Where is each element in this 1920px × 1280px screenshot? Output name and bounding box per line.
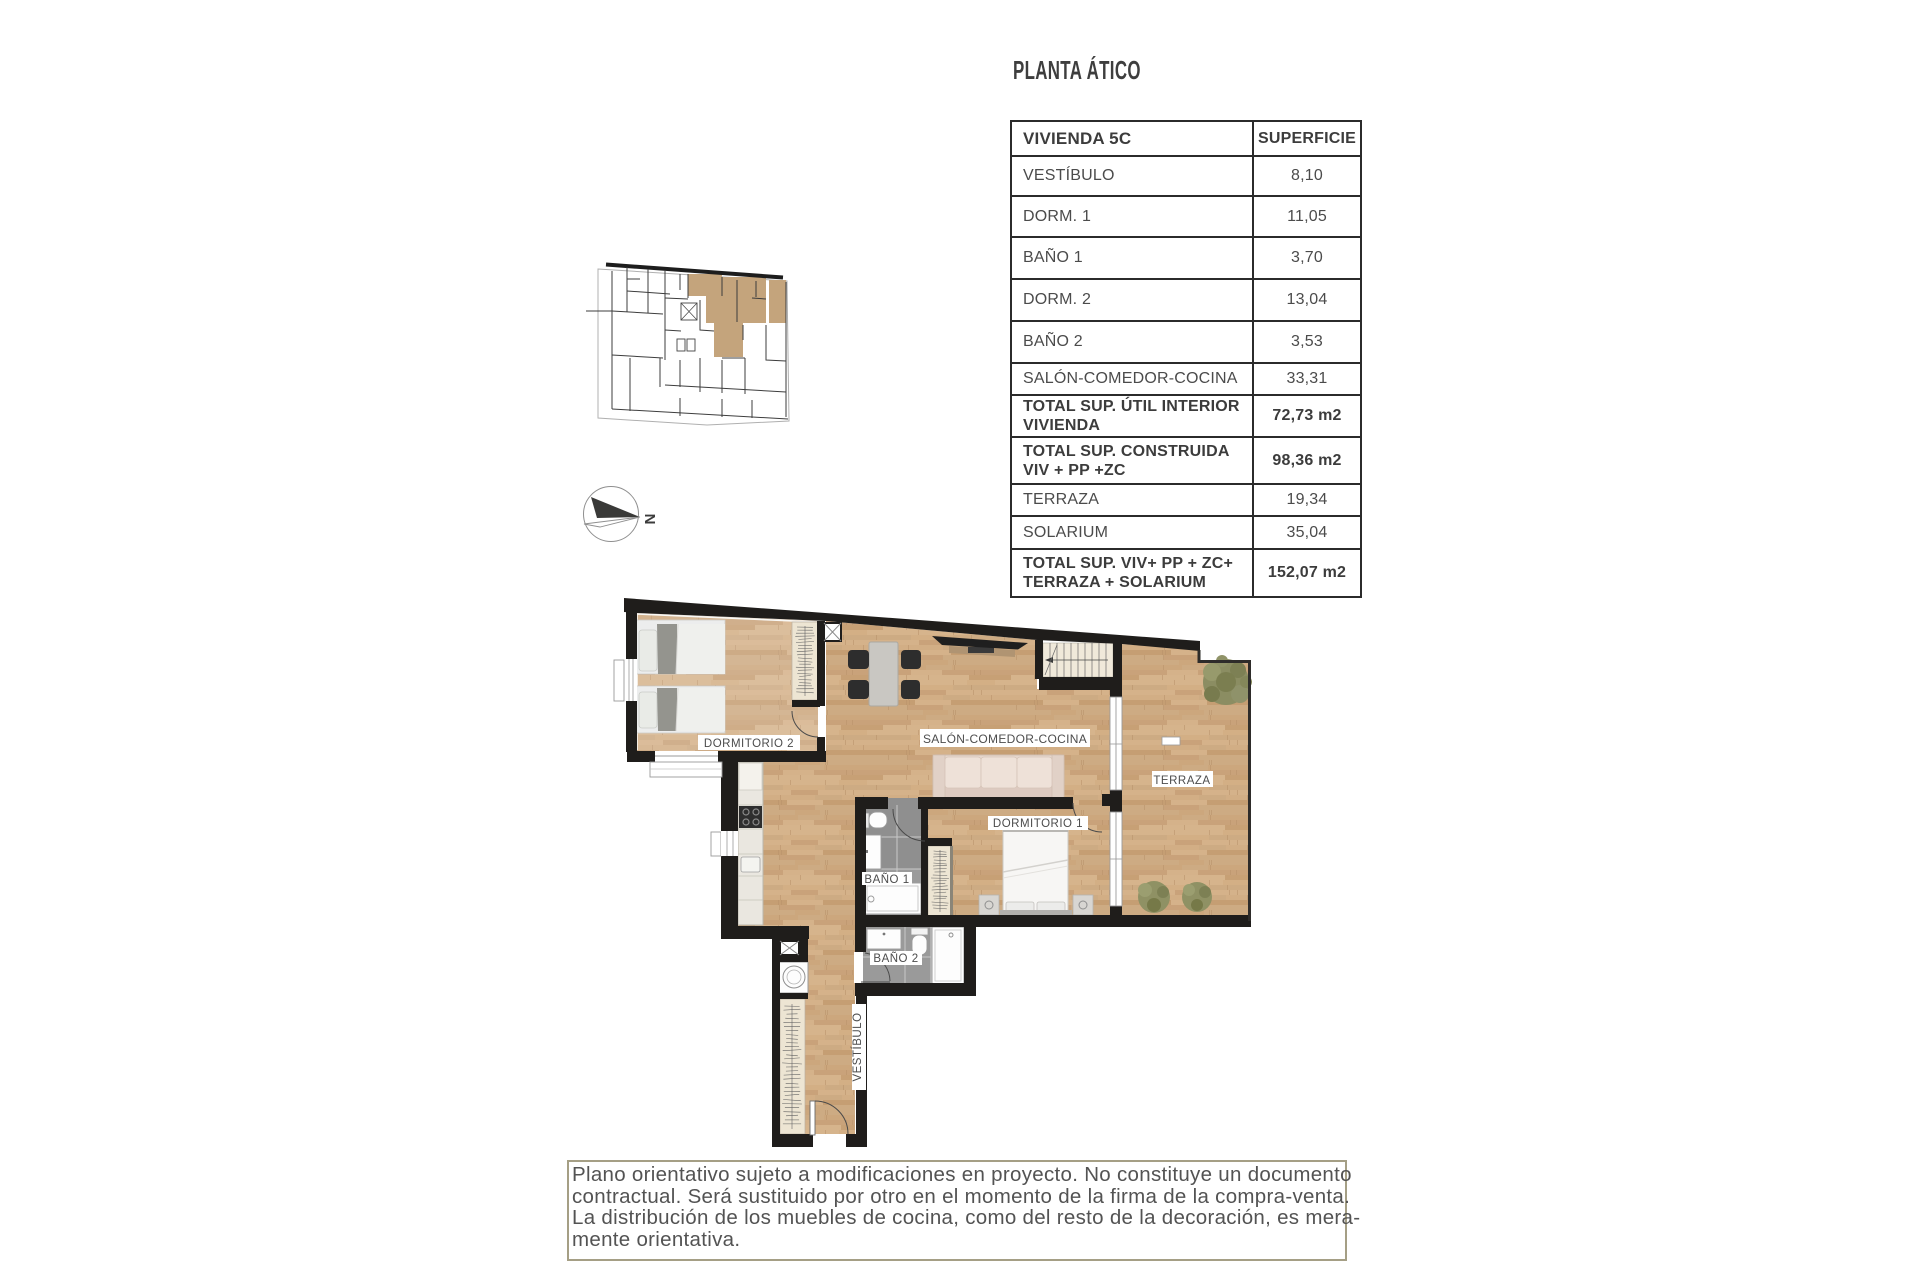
svg-text:VESTÍBULO: VESTÍBULO xyxy=(851,1012,864,1081)
svg-text:DORMITORIO 1: DORMITORIO 1 xyxy=(993,818,1083,830)
svg-text:BAÑO 1: BAÑO 1 xyxy=(864,873,909,886)
svg-text:DORMITORIO 2: DORMITORIO 2 xyxy=(704,738,794,750)
svg-text:TERRAZA: TERRAZA xyxy=(1153,775,1210,787)
svg-text:SALÓN-COMEDOR-COCINA: SALÓN-COMEDOR-COCINA xyxy=(923,731,1087,746)
svg-text:N: N xyxy=(641,514,658,525)
svg-text:BAÑO 2: BAÑO 2 xyxy=(873,952,918,965)
